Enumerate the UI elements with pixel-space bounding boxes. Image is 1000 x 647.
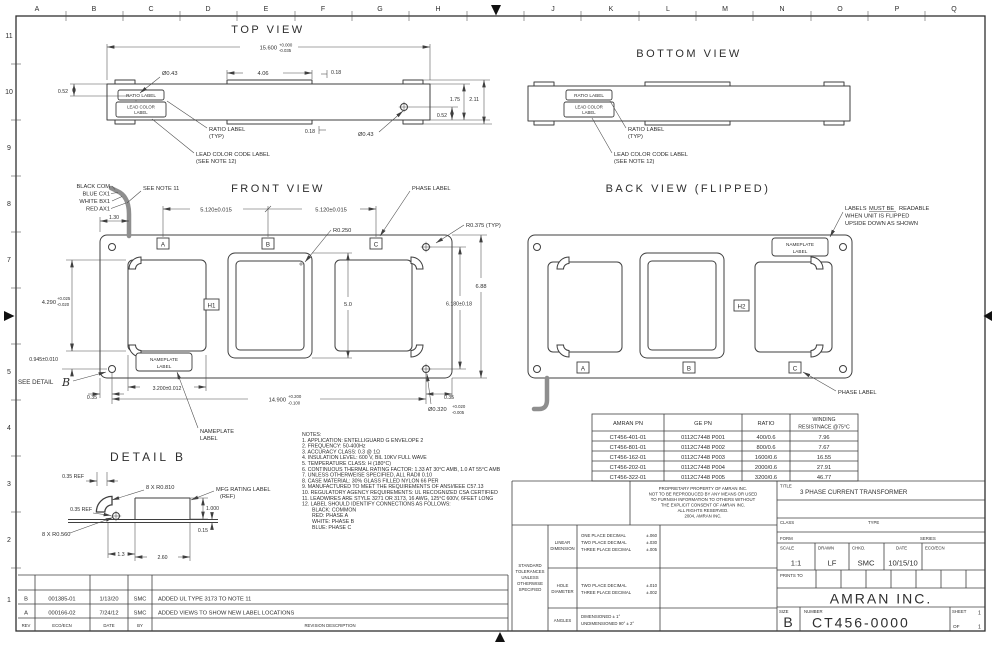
lead-color-text: LEAD COLOR <box>575 105 603 110</box>
dia-mount-minus: -0.005 <box>452 410 465 415</box>
tol-row-value: ±.010 <box>646 583 657 588</box>
tol-row-value: ±.002 <box>646 590 657 595</box>
sheet-label: SHEET <box>952 609 967 614</box>
rev-header: ECO/ECN <box>52 623 72 628</box>
dim-035-left: 0.35 <box>87 395 97 401</box>
table-cell: 0112C7448 P005 <box>681 475 725 481</box>
drawn-label: DRAWN <box>818 546 834 551</box>
rev-header: REVISION DESCRIPTION <box>304 623 355 628</box>
tol-row-label: DIMENSIONED ± 1° <box>581 614 620 619</box>
dim-052-right: 0.52 <box>437 113 447 119</box>
date-value: 10/15/10 <box>888 559 918 568</box>
drawn-value: LF <box>828 559 837 568</box>
proprietary-line: NOT TO BE REPRODUCED BY ANY MEANS OR USE… <box>649 492 757 497</box>
company-name: AMRAN INC. <box>830 591 932 607</box>
nameplate-text: LABEL <box>793 249 808 254</box>
title-block-region: PROPRIETARY PROPERTY OF AMRAN INC. NOT T… <box>512 481 985 631</box>
pn-table-header: GE PN <box>694 421 712 427</box>
nameplate-text: NAMEPLATE <box>786 242 814 247</box>
corner-slot <box>96 496 112 512</box>
h2-text: H2 <box>738 304 746 311</box>
phase-label-callout: PHASE LABEL <box>838 390 877 396</box>
dim-175: 1.75 <box>450 97 460 103</box>
table-cell: 46.77 <box>817 475 831 481</box>
rev-cell: ADDED VIEWS TO SHOW NEW LABEL LOCATIONS <box>158 611 295 617</box>
zone-number: 3 <box>7 481 11 488</box>
dim-13: 1.3 <box>117 552 124 558</box>
tolerance-block: STANDARD TOLERANCES UNLESS OTHERWISE SPE… <box>515 533 657 626</box>
flip-note: UPSIDE DOWN AS SHOWN <box>845 221 918 227</box>
tol-row-value: ±.030 <box>646 540 657 545</box>
phase-marker-b-text: B <box>687 366 691 373</box>
table-cell: 400/0.6 <box>757 435 776 441</box>
proprietary-line: THE EXPLICIT CONSENT OF AMRAN INC. <box>661 503 745 508</box>
lead-color-text: LEAD COLOR <box>127 105 155 110</box>
dim-width-plus: +0.000 <box>279 43 293 48</box>
corner-slot <box>129 257 141 269</box>
dim-035-ref-left: 0.35 REF <box>70 507 92 513</box>
dim-1000: 1.000 <box>206 506 219 512</box>
ratio-callout-typ: (TYP) <box>628 134 643 140</box>
wire-label-white: WHITE BX1 <box>79 199 110 205</box>
table-cell: CT456-162-01 <box>610 455 647 461</box>
table-cell: 800/0.6 <box>757 445 776 451</box>
revision-row-b: B 001385-01 1/13/20 SMC ADDED UL TYPE 31… <box>24 597 251 603</box>
rev-cell: 1/13/20 <box>100 597 119 603</box>
mount-hole <box>399 102 409 112</box>
phase-label-callout: PHASE LABEL <box>412 186 451 192</box>
flip-note: WHEN UNIT IS FLIPPED <box>845 214 909 220</box>
rev-header: BY <box>137 623 143 628</box>
table-cell: CT456-322-01 <box>610 475 647 481</box>
dim-14900: 14.900 <box>269 398 286 404</box>
mount-hole <box>534 366 541 373</box>
lead-callout-note: (SEE NOTE 12) <box>614 159 655 165</box>
dim-052-left: 0.52 <box>58 89 68 95</box>
sheet-total: 1 <box>978 625 981 631</box>
rev-cell: B <box>24 597 28 603</box>
dim-14900-minus: -0.100 <box>288 401 301 406</box>
back-view: BACK VIEW (FLIPPED) NAMEPLATE LABEL H2 A… <box>528 183 930 409</box>
of-label: OF <box>953 624 960 629</box>
std-tol-line: UNLESS <box>521 575 538 580</box>
bottom-view: BOTTOM VIEW RATIO LABEL LEAD COLOR LABEL… <box>528 48 850 165</box>
prints-to-label: PRINTS TO <box>780 573 803 578</box>
tol-row-value: ±.005 <box>646 547 657 552</box>
zone-number: 10 <box>5 89 13 96</box>
r-window: R0.250 <box>333 228 351 234</box>
drawing-canvas: A B C D E F G H J K L M N O P Q 11 10 9 … <box>0 0 1000 647</box>
zone-letter: O <box>837 6 843 13</box>
ratio-callout-typ: (TYP) <box>209 134 224 140</box>
zone-letter: N <box>779 6 784 13</box>
revision-table-grid <box>18 575 508 631</box>
mount-hole <box>840 244 847 251</box>
dim-035-ref-top: 0.35 REF <box>62 474 84 480</box>
detail-b-title: DETAIL B <box>110 450 186 464</box>
mount-hole <box>421 242 431 252</box>
proprietary-block: PROPRIETARY PROPERTY OF AMRAN INC. NOT T… <box>649 486 757 519</box>
tol-row-label: TWO PLACE DECIMAL <box>581 540 627 545</box>
bottom-view-title: BOTTOM VIEW <box>636 48 742 60</box>
drawing-number: CT456-0000 <box>812 615 910 631</box>
title-block-grid <box>512 481 985 631</box>
tol-row-label: TWO PLACE DECIMAL <box>581 583 627 588</box>
std-tol-line: TOLERANCES <box>515 569 544 574</box>
zone-number: 8 <box>7 201 11 208</box>
dim-130: 1.30 <box>109 215 119 221</box>
lead-callout: LEAD COLOR CODE LABEL <box>614 152 688 158</box>
table-cell: 0112C7448 P003 <box>681 455 725 461</box>
wire-label-red: RED AX1 <box>86 207 110 213</box>
std-tol-line: OTHERWISE <box>517 581 543 586</box>
see-note-11: SEE NOTE 11 <box>143 186 179 192</box>
drawing-title: 3 PHASE CURRENT TRANSFORMER <box>800 489 908 496</box>
eco-label: ECO/ECN <box>925 546 945 551</box>
zone-letter: Q <box>951 6 957 13</box>
mfg-rating-ref: (REF) <box>220 494 235 500</box>
table-cell: 7.67 <box>818 445 829 451</box>
tol-row-label: THREE PLACE DECIMAL <box>581 547 632 552</box>
std-tol-line: STANDARD <box>518 563 541 568</box>
nameplate-callout: NAMEPLATE <box>200 429 234 435</box>
zone-letter: C <box>148 6 153 13</box>
rev-header: DATE <box>103 623 114 628</box>
corner-slot <box>557 345 569 357</box>
revision-table: B 001385-01 1/13/20 SMC ADDED UL TYPE 31… <box>18 575 508 631</box>
pn-table-header: AMRAN PN <box>613 421 643 427</box>
leadwire-bundle <box>534 378 547 409</box>
nameplate-text: LABEL <box>157 364 172 369</box>
title-block: TITLE 3 PHASE CURRENT TRANSFORMER CLASS … <box>779 484 981 631</box>
tol-row-label: THREE PLACE DECIMAL <box>581 590 632 595</box>
dia-mount: Ø0.320 <box>428 407 447 413</box>
dim-pitch-right: 5.120±0.015 <box>315 208 347 214</box>
rev-cell: 001385-01 <box>48 597 75 603</box>
table-cell: 3200/0.6 <box>755 475 777 481</box>
detail-b-dim-lines <box>70 472 214 561</box>
zone-letter: H <box>435 6 440 13</box>
see-detail-label: SEE DETAIL <box>18 379 54 386</box>
rev-cell: SMC <box>134 597 147 603</box>
dim-015: 0.15 <box>198 528 208 534</box>
table-cell: 1600/0.6 <box>755 455 777 461</box>
sheet-frame: A B C D E F G H J K L M N O P Q 11 10 9 … <box>4 5 992 642</box>
zone-letter: J <box>551 6 555 13</box>
phase-marker-c-text: C <box>374 242 379 249</box>
revision-header-row: REV ECO/ECN DATE BY REVISION DESCRIPTION <box>22 623 356 628</box>
table-cell: 16.55 <box>817 455 831 461</box>
zone-number: 2 <box>7 537 11 544</box>
corner-slot <box>811 345 823 357</box>
phase-marker-c-text: C <box>793 366 798 373</box>
table-cell: CT456-801-01 <box>610 445 647 451</box>
std-tol-line: SPECIFIED <box>519 587 542 592</box>
drawing-sheet: A B C D E F G H J K L M N O P Q 11 10 9 … <box>0 0 1000 647</box>
scale-value: 1:1 <box>791 559 802 568</box>
wire-label-blue: BLUE CX1 <box>82 192 110 198</box>
r-corner: R0.375 (TYP) <box>466 223 501 229</box>
mount-hole <box>421 364 431 374</box>
dim-4290: 4.290 <box>42 300 56 306</box>
rev-cell: ADDED UL TYPE 3173 TO NOTE 11 <box>158 597 251 603</box>
size-value: B <box>783 614 794 630</box>
centering-marks <box>4 5 992 642</box>
rev-cell: 000166-02 <box>48 611 75 617</box>
dim-3200: 3.200±0.012 <box>153 386 182 392</box>
scale-label: SCALE <box>780 546 794 551</box>
dim-hole-v: 6.180±0.18 <box>446 302 472 308</box>
rev-cell: SMC <box>134 611 147 617</box>
mount-hole <box>109 366 116 373</box>
linear-dim-label: DIMENSION <box>550 546 574 551</box>
dim-height-overall: 6.88 <box>475 284 486 290</box>
zone-letter: L <box>666 6 670 13</box>
dim-width-minus: -0.035 <box>279 48 292 53</box>
date-label: DATE <box>896 546 907 551</box>
r-slot: 8 X R0.810 <box>146 485 174 491</box>
dim-14900-plus: +0.200 <box>288 394 302 399</box>
dim-260: 2.60 <box>157 555 167 561</box>
dim-pitch-left: 5.120±0.015 <box>200 208 232 214</box>
corner-slot <box>811 257 823 269</box>
zone-number: 9 <box>7 145 11 152</box>
r-hole: 8 X R0.560 <box>42 532 70 538</box>
zone-letter: K <box>609 6 614 13</box>
dia-hole-left: Ø0.43 <box>162 71 178 77</box>
hole-dia-label: DIAMETER <box>551 589 573 594</box>
dim-0945: 0.945±0.010 <box>29 357 58 363</box>
sheet-num: 1 <box>978 611 981 617</box>
detail-b: DETAIL B 0.35 REF 8 X R0.810 MFG RATING … <box>42 450 271 561</box>
title-label: TITLE <box>780 484 792 489</box>
chkd-label: CHKD. <box>852 546 865 551</box>
flip-note-underlined: MUST BE <box>869 206 894 212</box>
back-view-title: BACK VIEW (FLIPPED) <box>606 183 771 195</box>
table-cell: CT456-202-01 <box>610 465 647 471</box>
nameplate-text: NAMEPLATE <box>150 357 178 362</box>
series-label: SERIES <box>920 536 936 541</box>
zone-letter: M <box>722 6 728 13</box>
flip-note: LABELS <box>845 206 867 212</box>
rev-cell: 7/24/12 <box>100 611 119 617</box>
lead-callout-note: (SEE NOTE 12) <box>196 159 237 165</box>
table-cell: CT456-401-01 <box>610 435 647 441</box>
front-view-dim-lines <box>62 206 487 428</box>
type-label: TYPE <box>868 520 879 525</box>
mount-hole <box>109 244 116 251</box>
lead-color-text: LABEL <box>134 110 148 115</box>
dim-035-right: 0.35 <box>444 395 454 401</box>
leadwire-bundle <box>111 188 129 236</box>
center-arrow-bottom <box>495 632 505 642</box>
tol-row-label: ONE PLACE DECIMAL <box>581 533 627 538</box>
proprietary-line: TO FURNISH INFORMATION TO OTHERS WITHOUT <box>651 497 756 502</box>
table-cell: 0112C7448 P001 <box>681 435 725 441</box>
class-label: CLASS <box>780 520 794 525</box>
linear-dim-label: LINEAR <box>555 540 571 545</box>
zone-letter: D <box>205 6 210 13</box>
zone-number: 11 <box>5 33 12 40</box>
dim-4290-plus: +0.025 <box>57 296 71 301</box>
ratio-callout: RATIO LABEL <box>209 127 245 133</box>
corner-slot <box>411 345 423 357</box>
proprietary-line: 2004, AMRAN INC. <box>684 514 721 519</box>
see-detail-ref: B <box>61 376 70 389</box>
proprietary-line: ALL RIGHTS RESERVED. <box>678 508 729 513</box>
table-cell: 27.91 <box>817 465 831 471</box>
proprietary-line: PROPRIETARY PROPERTY OF AMRAN INC. <box>659 486 747 491</box>
front-view-title: FRONT VIEW <box>231 183 325 195</box>
zone-letter: A <box>35 6 40 13</box>
h1-text: H1 <box>208 303 216 310</box>
dim-width: 15.600 <box>260 46 277 52</box>
dim-tab: 4.06 <box>257 71 268 77</box>
pn-table: AMRAN PN GE PN RATIO WINDING RESISTNACE … <box>592 414 858 481</box>
nameplate-callout: LABEL <box>200 436 218 442</box>
center-arrow-left <box>4 311 15 321</box>
dim-018-top: 0.18 <box>331 70 341 76</box>
form-label: FORM <box>780 536 793 541</box>
lead-callout: LEAD COLOR CODE LABEL <box>196 152 270 158</box>
rev-cell: A <box>24 611 28 617</box>
zone-letter: P <box>895 6 900 13</box>
dia-mount-plus: +0.020 <box>452 404 466 409</box>
top-view: TOP VIEW RATIO LABEL LEAD COLOR LABEL 15… <box>58 24 492 165</box>
mount-hole <box>840 366 847 373</box>
table-cell: 2000/0.6 <box>755 465 777 471</box>
dia-hole-right: Ø0.43 <box>358 132 374 138</box>
notes-block: NOTES: 1. APPLICATION: ENTELLIGUARD G EN… <box>302 432 501 531</box>
angles-label: ANGLES <box>554 618 572 623</box>
corner-slot <box>411 257 423 269</box>
wire-label-black: BLACK COM <box>76 184 110 190</box>
dim-018-bottom: 0.18 <box>305 129 315 135</box>
dim-211: 2.11 <box>469 97 479 103</box>
rev-header: REV <box>22 623 31 628</box>
table-cell: 0112C7448 P004 <box>681 465 725 471</box>
center-arrow-top <box>491 5 501 16</box>
ratio-callout: RATIO LABEL <box>628 127 664 133</box>
zone-letter: G <box>377 6 382 13</box>
tol-row-label: UNDIMENSIONED 90° ± 2° <box>581 621 634 626</box>
flip-note: READABLE <box>899 206 930 212</box>
zone-number: 1 <box>7 597 11 604</box>
ratio-label-text: RATIO LABEL <box>574 93 604 98</box>
mount-hole <box>534 244 541 251</box>
table-cell: 0112C7448 P002 <box>681 445 725 451</box>
zone-letter: E <box>264 6 269 13</box>
zone-number: 7 <box>7 257 11 264</box>
table-cell: 7.96 <box>818 435 829 441</box>
phase-marker-b-text: B <box>266 242 270 249</box>
dim-4290-minus: -0.020 <box>57 302 70 307</box>
pn-table-header: RATIO <box>758 421 776 427</box>
ratio-label-text: RATIO LABEL <box>126 93 156 98</box>
lead-color-text: LABEL <box>582 110 596 115</box>
pn-table-header: WINDING <box>812 417 835 423</box>
chkd-value: SMC <box>858 559 875 568</box>
zone-letter: B <box>92 6 97 13</box>
mfg-rating-label: MFG RATING LABEL <box>216 487 271 493</box>
note-line: BLUE: PHASE C <box>312 525 351 531</box>
corner-slot <box>557 257 569 269</box>
front-view: FRONT VIEW A B C H1 NAMEPLATE LABEL BLAC… <box>18 183 501 442</box>
dim-window-h: 5.0 <box>344 302 352 308</box>
top-view-title: TOP VIEW <box>231 24 304 36</box>
number-label: NUMBER <box>804 609 823 614</box>
zone-letter: F <box>321 6 325 13</box>
pn-table-header: RESISTNACE @75°C <box>798 425 850 431</box>
tol-row-value: ±.060 <box>646 533 657 538</box>
hole-dia-label: HOLE <box>557 583 569 588</box>
zone-number: 4 <box>7 425 11 432</box>
zone-number: 5 <box>7 369 11 376</box>
revision-row-a: A 000166-02 7/24/12 SMC ADDED VIEWS TO S… <box>24 611 294 617</box>
